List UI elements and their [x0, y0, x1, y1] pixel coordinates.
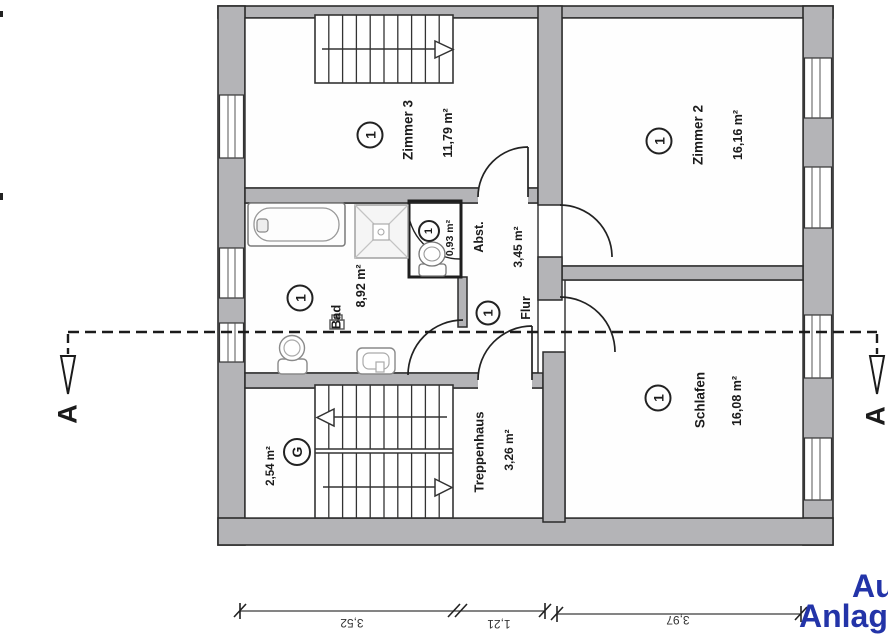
staircase-upper-icon	[315, 15, 453, 83]
sink-icon	[357, 348, 395, 374]
floor-plan-drawing	[0, 0, 888, 642]
shower-icon	[355, 205, 408, 258]
opening-treppenhaus	[478, 371, 532, 390]
label-abstellraum-name: Abst.	[472, 221, 486, 252]
badge-flur: 1	[476, 301, 501, 326]
label-zimmer2-name: Zimmer 2	[691, 105, 706, 165]
label-treppenhaus-name: Treppenhaus	[472, 412, 487, 493]
window-right-1	[805, 58, 832, 118]
wall-top	[218, 6, 833, 18]
badge-bad: 1	[287, 285, 314, 312]
wc-toilet-icon	[419, 242, 446, 276]
label-zimmer3-area: 11,79 m²	[441, 108, 455, 157]
badge-zimmer3: 1	[357, 122, 384, 149]
label-wc-area: 0,93 m²	[444, 220, 456, 256]
dimension-3-52: 3,52	[340, 616, 363, 630]
window-left-1	[220, 95, 244, 158]
window-left-3	[220, 323, 244, 362]
label-bad-name: Bad	[329, 305, 344, 330]
label-g-raum-area: 2,54 m²	[265, 446, 277, 486]
section-arrow-left	[61, 356, 75, 394]
badge-wc: 1	[418, 220, 440, 242]
corner-note-line2: Anlag	[799, 600, 888, 632]
room-zimmer2-floor	[562, 18, 803, 266]
label-flur-name: Flur	[519, 296, 533, 320]
section-arrow-right	[870, 356, 884, 394]
dimension-lines	[234, 603, 807, 622]
label-zimmer2-area: 16,16 m²	[731, 110, 745, 160]
wall-mid-upper	[538, 6, 562, 205]
label-bad-area: 8,92 m²	[354, 264, 368, 307]
dimension-3-97: 3,97	[666, 613, 689, 627]
badge-zimmer2: 1	[646, 128, 673, 155]
edge-marks	[0, 11, 3, 200]
floor-plan: 1 1 1 1 1 1 G Zimmer 3 11,79 m² Zimmer 2…	[0, 0, 888, 642]
window-right-4	[805, 438, 832, 500]
wall-bottom	[218, 518, 833, 545]
badge-g-raum: G	[283, 438, 311, 466]
label-schlafen-area: 16,08 m²	[730, 376, 744, 426]
badge-schlafen: 1	[645, 385, 672, 412]
label-schlafen-name: Schlafen	[693, 372, 708, 428]
opening-zimmer3	[478, 186, 528, 205]
window-right-2	[805, 167, 832, 228]
label-treppenhaus-area: 3,26 m²	[502, 429, 516, 470]
wall-mid-stub	[538, 257, 562, 300]
staircase-ground-icon	[315, 385, 453, 518]
wall-mid-lower	[543, 352, 565, 522]
label-zimmer3-name: Zimmer 3	[401, 100, 416, 160]
dimension-1-21: 1,21	[487, 617, 510, 631]
bathtub-icon	[248, 203, 345, 246]
label-abstellraum-area: 3,45 m²	[511, 226, 525, 267]
window-right-3	[805, 315, 832, 378]
section-letter-right: A	[861, 406, 888, 426]
section-letter-left: A	[53, 404, 84, 424]
toilet-icon	[278, 336, 307, 375]
window-left-2	[220, 248, 244, 298]
wall-zimmer2-schlafen	[562, 266, 803, 280]
